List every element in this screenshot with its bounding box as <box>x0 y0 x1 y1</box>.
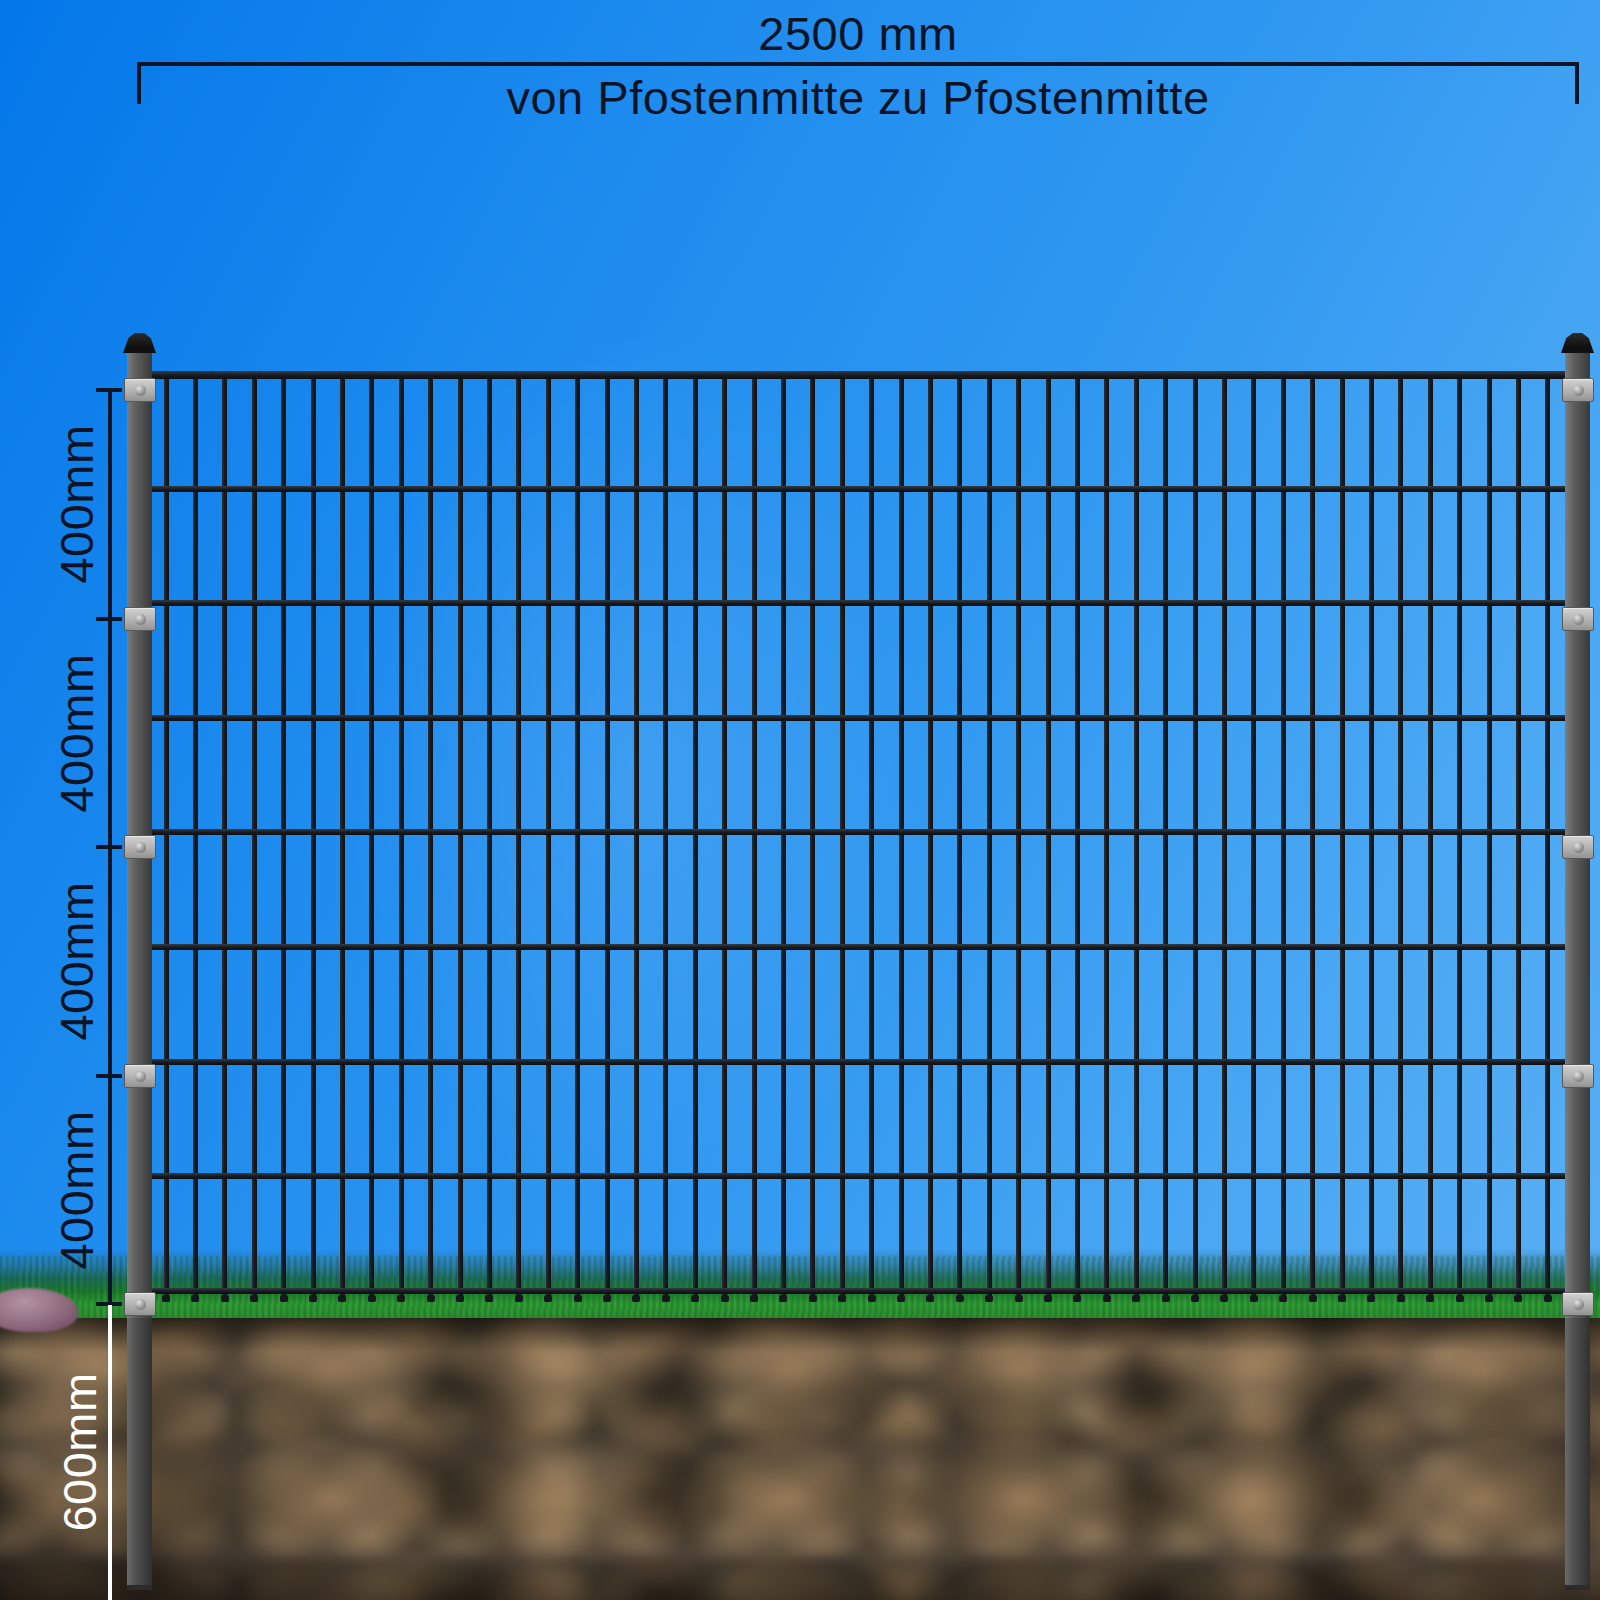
fence-bar <box>1222 374 1227 1302</box>
fence-bar <box>1104 374 1109 1302</box>
fence-bar <box>575 374 580 1302</box>
fence-bar <box>1428 374 1433 1302</box>
fence-rail <box>151 1059 1566 1065</box>
dimension-tick <box>96 1074 122 1078</box>
fence-bar <box>222 374 227 1302</box>
dimension-tick <box>96 617 122 621</box>
fence-bar <box>1016 374 1021 1302</box>
fence-bar <box>428 374 433 1302</box>
clamp-screw-icon <box>135 842 146 853</box>
clamp-screw-icon <box>1573 1299 1584 1310</box>
fence-bar <box>693 374 698 1302</box>
fence-bar <box>281 374 286 1302</box>
fence-bar <box>311 374 316 1302</box>
fence-rail <box>151 944 1566 950</box>
fence-bar <box>1251 374 1256 1302</box>
dimension-segment-label: 400mm <box>49 425 104 584</box>
fence-dimension-diagram: 2500 mm von Pfostenmitte zu Pfostenmitte… <box>0 0 1600 1600</box>
fence-post-right <box>1565 352 1590 1590</box>
fence-bar <box>605 374 610 1302</box>
post-clamp <box>124 835 156 859</box>
dimension-tick <box>96 845 122 849</box>
fence-bar <box>546 374 551 1302</box>
fence-bar <box>987 374 992 1302</box>
post-underground-right <box>1565 1318 1590 1590</box>
fence-bar <box>1281 374 1286 1302</box>
fence-bar <box>1046 374 1051 1302</box>
fence-bar <box>340 374 345 1302</box>
fence-bar <box>164 374 169 1302</box>
fence-bar <box>634 374 639 1302</box>
post-clamp <box>1562 378 1594 402</box>
fence-rail <box>151 371 1566 379</box>
clamp-screw-icon <box>1573 1071 1584 1082</box>
fence-bar <box>1193 374 1198 1302</box>
top-dimension-line <box>139 62 1578 66</box>
fence-rail <box>151 486 1566 492</box>
dimension-segment-label: 400mm <box>49 882 104 1041</box>
post-clamp <box>1562 1292 1594 1316</box>
fence-bar <box>1075 374 1080 1302</box>
fence-bar <box>928 374 933 1302</box>
fence-bar <box>1163 374 1168 1302</box>
fence-bar <box>252 374 257 1302</box>
top-dimension-value: 2500 mm <box>758 8 957 60</box>
fence-bar <box>840 374 845 1302</box>
fence-bar <box>781 374 786 1302</box>
fence-bar <box>1487 374 1492 1302</box>
post-underground-left <box>127 1318 152 1590</box>
fence-bar <box>957 374 962 1302</box>
fence-rail <box>151 1288 1566 1294</box>
fence-bar <box>1134 374 1139 1302</box>
fence-bar <box>1398 374 1403 1302</box>
fence-bar <box>1310 374 1315 1302</box>
fence-bar <box>869 374 874 1302</box>
underground-dimension-line <box>108 1305 112 1600</box>
top-dimension-tick-right <box>1575 62 1579 104</box>
fence-bar <box>810 374 815 1302</box>
clamp-screw-icon <box>135 614 146 625</box>
clamp-screw-icon <box>135 1071 146 1082</box>
fence-bar <box>1516 374 1521 1302</box>
fence-bar <box>722 374 727 1302</box>
post-clamp <box>124 1064 156 1088</box>
fence-bar <box>1545 374 1550 1302</box>
fence-bar <box>899 374 904 1302</box>
fence-rail <box>151 1173 1566 1179</box>
clamp-screw-icon <box>1573 842 1584 853</box>
fence-bar <box>1457 374 1462 1302</box>
dimension-segment-label: 400mm <box>49 1110 104 1269</box>
clamp-screw-icon <box>135 385 146 396</box>
post-bottom-left <box>127 1585 152 1590</box>
clamp-screw-icon <box>1573 385 1584 396</box>
underground-dimension-label: 600mm <box>52 1372 107 1531</box>
fence-bar <box>516 374 521 1302</box>
fence-bar <box>369 374 374 1302</box>
clamp-screw-icon <box>1573 614 1584 625</box>
fence-rail <box>151 715 1566 721</box>
sky-glow <box>0 0 1600 1340</box>
dimension-segment-label: 400mm <box>49 653 104 812</box>
soil-cross-section <box>0 1318 1600 1600</box>
soil-shading <box>0 1318 1600 1600</box>
clamp-screw-icon <box>135 1299 146 1310</box>
fence-bar <box>663 374 668 1302</box>
post-bottom-right <box>1565 1585 1590 1590</box>
fence-bar <box>1340 374 1345 1302</box>
fence-bar <box>487 374 492 1302</box>
fence-rail <box>151 829 1566 835</box>
top-dimension-subtitle: von Pfostenmitte zu Pfostenmitte <box>506 72 1209 124</box>
fence-bar <box>1369 374 1374 1302</box>
fence-rail <box>151 600 1566 606</box>
fence-bar <box>752 374 757 1302</box>
post-clamp <box>124 378 156 402</box>
post-clamp <box>1562 835 1594 859</box>
fence-post-left <box>127 352 152 1590</box>
post-clamp <box>1562 607 1594 631</box>
fence-bar <box>399 374 404 1302</box>
fence-bar <box>193 374 198 1302</box>
post-clamp <box>124 607 156 631</box>
post-clamp <box>1562 1064 1594 1088</box>
post-clamp <box>124 1292 156 1316</box>
top-dimension-tick-left <box>137 62 141 104</box>
dimension-tick <box>96 388 122 392</box>
fence-bar <box>458 374 463 1302</box>
